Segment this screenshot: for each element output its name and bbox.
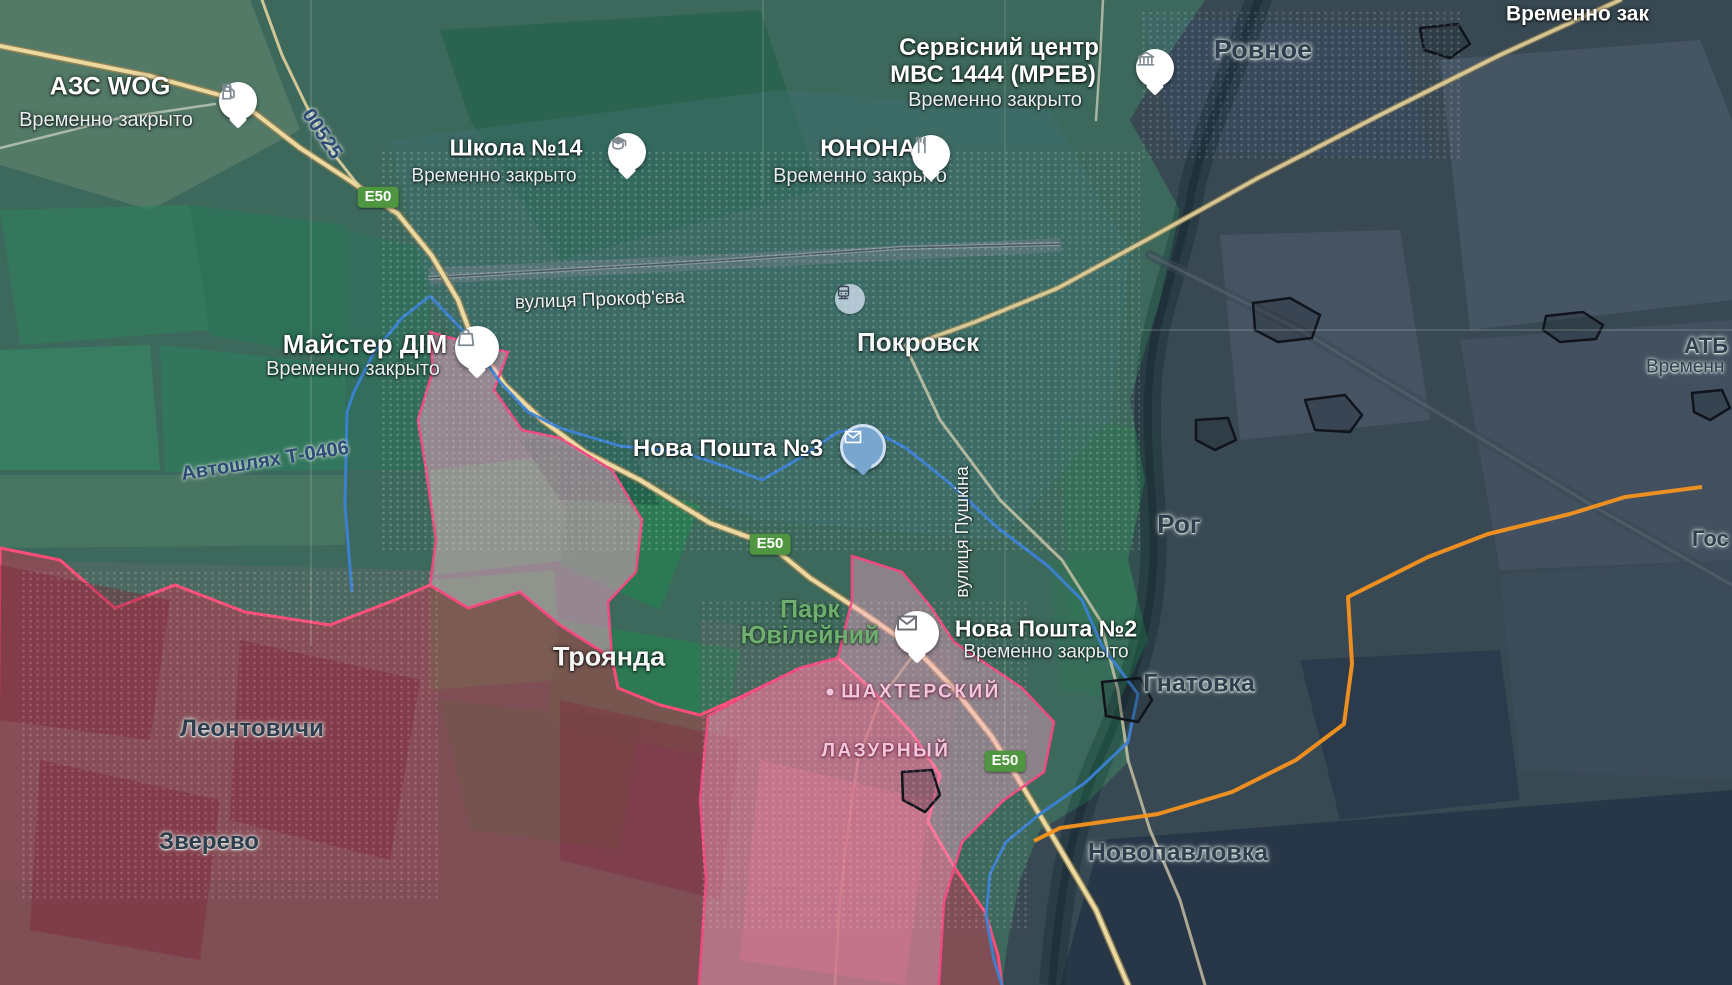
e50-road-badge: E50 — [358, 187, 399, 208]
district-dot — [827, 689, 834, 696]
restaurant-pin[interactable] — [912, 135, 950, 173]
fuel-icon — [219, 82, 239, 102]
nova-poshta-2-pin[interactable] — [895, 611, 939, 655]
government-office-pin[interactable] — [1136, 49, 1174, 87]
mail-icon — [843, 427, 863, 447]
shopping-bag-icon — [455, 326, 477, 348]
mail-icon — [895, 611, 919, 635]
restaurant-icon — [912, 135, 932, 155]
hardware-store-pin[interactable] — [455, 326, 499, 370]
government-building-icon — [1136, 49, 1156, 69]
map-base-layers — [0, 0, 1732, 985]
graduation-cap-icon — [608, 133, 628, 153]
map-canvas[interactable]: АЗС WOG Временно закрыто 00525 E50 E50 E… — [0, 0, 1732, 985]
e50-road-badge: E50 — [750, 534, 791, 555]
nova-poshta-3-pin[interactable] — [840, 424, 886, 470]
e50-road-badge: E50 — [985, 751, 1026, 772]
school-pin[interactable] — [608, 133, 646, 171]
train-icon — [835, 284, 852, 301]
fuel-station-pin[interactable] — [219, 82, 257, 120]
transit-station-pin[interactable] — [835, 284, 865, 314]
